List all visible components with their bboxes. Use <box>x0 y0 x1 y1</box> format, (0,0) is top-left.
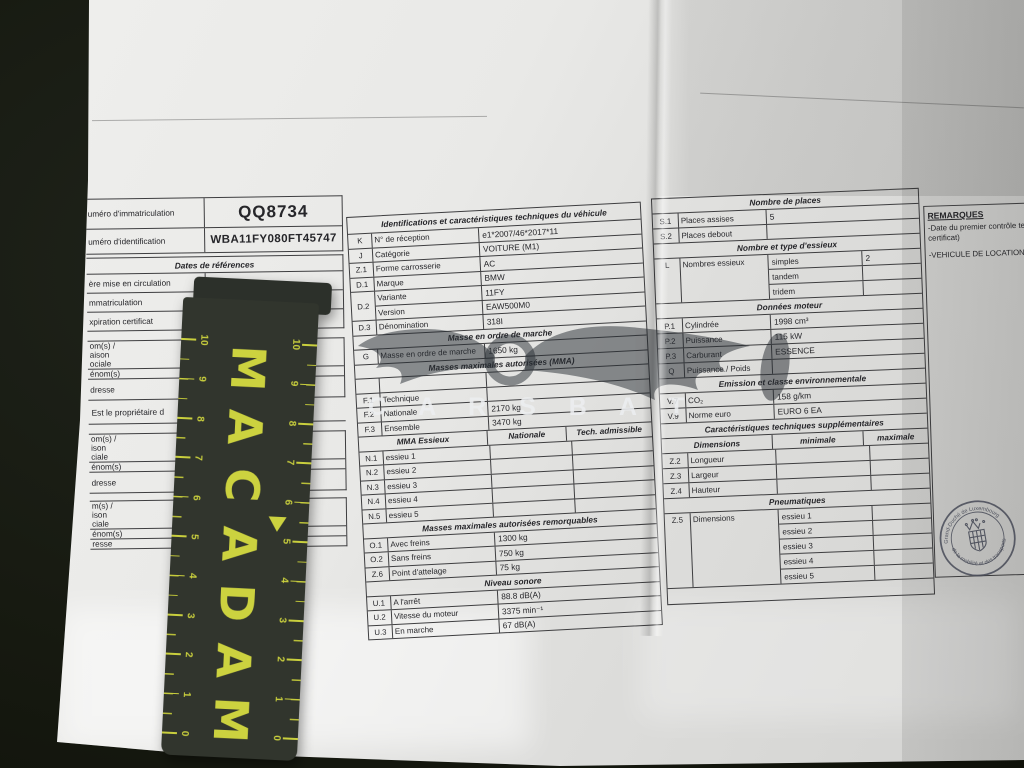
table-row: uméro d'immatriculation QQ8734 <box>86 196 342 229</box>
brand-letter: A <box>205 642 263 680</box>
paper-shadow-topright <box>652 0 1024 196</box>
row-label: uméro d'immatriculation <box>86 198 205 229</box>
row-label: Dimensions <box>691 510 782 587</box>
row-code: N.3 <box>361 480 386 495</box>
row-code: O.2 <box>365 552 390 567</box>
remarks-box: REMARQUES -Date du premier contrôle tech… <box>923 202 1024 578</box>
tyre-rows: essieu 1 essieu 2 essieu 3 <box>779 504 934 584</box>
row-code: Z.4 <box>663 483 690 498</box>
row-value <box>872 504 931 520</box>
row-code: Z.5 <box>665 513 694 588</box>
row-code: U.2 <box>368 610 393 625</box>
pointer-triangle-icon <box>268 516 287 532</box>
row-value <box>874 534 933 550</box>
row-code: N.2 <box>360 465 385 480</box>
remarks-lines: -Date du premier contrôle tech certifica… <box>928 220 1024 261</box>
watermark-ring <box>489 339 531 381</box>
row-code: N.4 <box>362 494 387 509</box>
registration-number: QQ8734 <box>205 196 342 227</box>
remark-line: certificat) <box>928 230 1024 244</box>
fold-line-left <box>92 116 487 122</box>
row-code: N.5 <box>362 509 387 524</box>
stamp-text-top: Grand-Duché de Luxembourg <box>938 502 1003 545</box>
row-value-max <box>871 459 930 475</box>
row-code: U.1 <box>367 596 392 611</box>
row-value-max <box>870 444 929 460</box>
row-code: Z.1 <box>350 263 375 278</box>
axle-rows: N.1 essieu 1 N.2 essieu 2 N.3 <box>359 436 655 524</box>
document-paper: uméro d'immatriculation QQ8734 uméro d'i… <box>0 0 1024 768</box>
row-code: D.1 <box>350 277 375 292</box>
remarks-title: REMARQUES <box>927 207 1024 220</box>
table-row: uméro d'identification WBA11FY080FT45747 <box>86 225 342 254</box>
photo-scene: uméro d'immatriculation QQ8734 uméro d'i… <box>0 0 1024 768</box>
row-value <box>873 519 932 535</box>
row-value <box>874 549 933 565</box>
ruler-brand: M A C A D A M <box>161 337 317 751</box>
brand-letter: D <box>208 582 266 623</box>
row-label: ère mise en circulation <box>87 273 206 293</box>
svg-text:Grand-Duché de Luxembourg: Grand-Duché de Luxembourg <box>938 502 1003 545</box>
row-code: K <box>348 234 373 249</box>
subheader-cell: maximale <box>863 429 928 446</box>
row-value-max <box>871 474 930 490</box>
row-label: uméro d'identification <box>86 228 205 254</box>
paper-highlight <box>640 600 1020 720</box>
carsbat-watermark: C A R S B A T <box>350 312 795 427</box>
registration-block: uméro d'immatriculation QQ8734 uméro d'i… <box>86 195 344 255</box>
row-value: 2 <box>862 249 921 265</box>
row-code: O.1 <box>364 538 389 553</box>
macadam-ruler: 10 10 9 9 8 <box>161 297 319 761</box>
row-code: Z.6 <box>366 567 391 582</box>
row-code: Z.2 <box>662 453 689 468</box>
brand-letter: M <box>202 695 260 743</box>
row-value <box>875 564 934 580</box>
row-code: J <box>349 248 374 263</box>
brand-letter: C <box>213 467 271 503</box>
row-label: Nombres essieux <box>680 255 770 302</box>
official-stamp: Grand-Duché de Luxembourg de la mobilité… <box>930 491 1024 586</box>
crown-shield-icon <box>965 517 990 552</box>
vin-number: WBA11FY080FT45747 <box>205 226 342 252</box>
row-code: N.1 <box>359 451 384 466</box>
row-code: U.3 <box>369 625 394 640</box>
bat-wings-icon <box>358 326 794 403</box>
remark-line: -VEHICULE DE LOCATION S <box>929 248 1024 262</box>
brand-letter: A <box>216 408 274 446</box>
brand-letter: A <box>210 525 268 563</box>
row-value <box>863 279 922 295</box>
tyre-block: Z.5 Dimensions essieu 1 essieu 2 <box>665 503 934 589</box>
axle-type-rows: simples 2 tandem tridem <box>768 249 922 299</box>
ruler-body: 10 10 9 9 8 <box>161 297 319 761</box>
row-value <box>863 264 922 280</box>
brand-letter: M <box>219 344 277 392</box>
row-code: Z.3 <box>663 468 690 483</box>
